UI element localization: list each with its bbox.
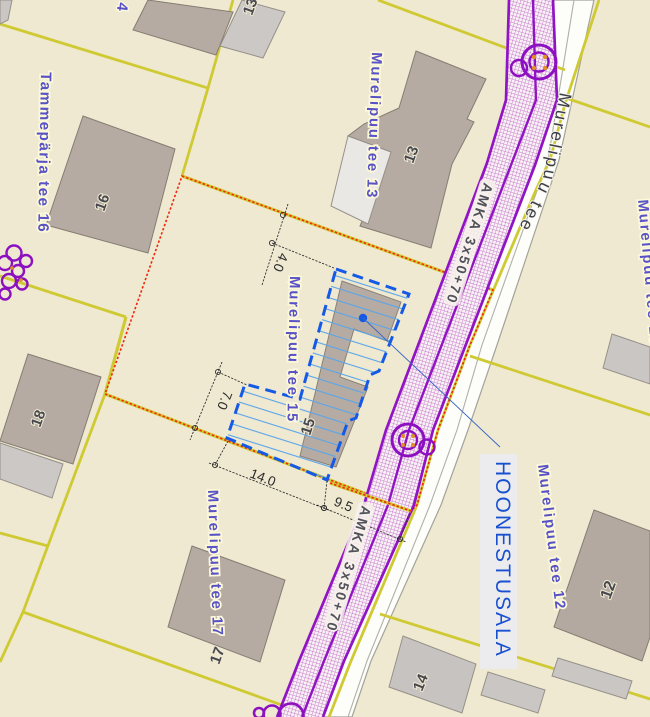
svg-text:Murelipuu tee 15: Murelipuu tee 15	[283, 276, 302, 423]
svg-text:HOONESTUSALA: HOONESTUSALA	[491, 461, 514, 658]
svg-text:Tammepärja tee 16: Tammepärja tee 16	[34, 72, 54, 233]
